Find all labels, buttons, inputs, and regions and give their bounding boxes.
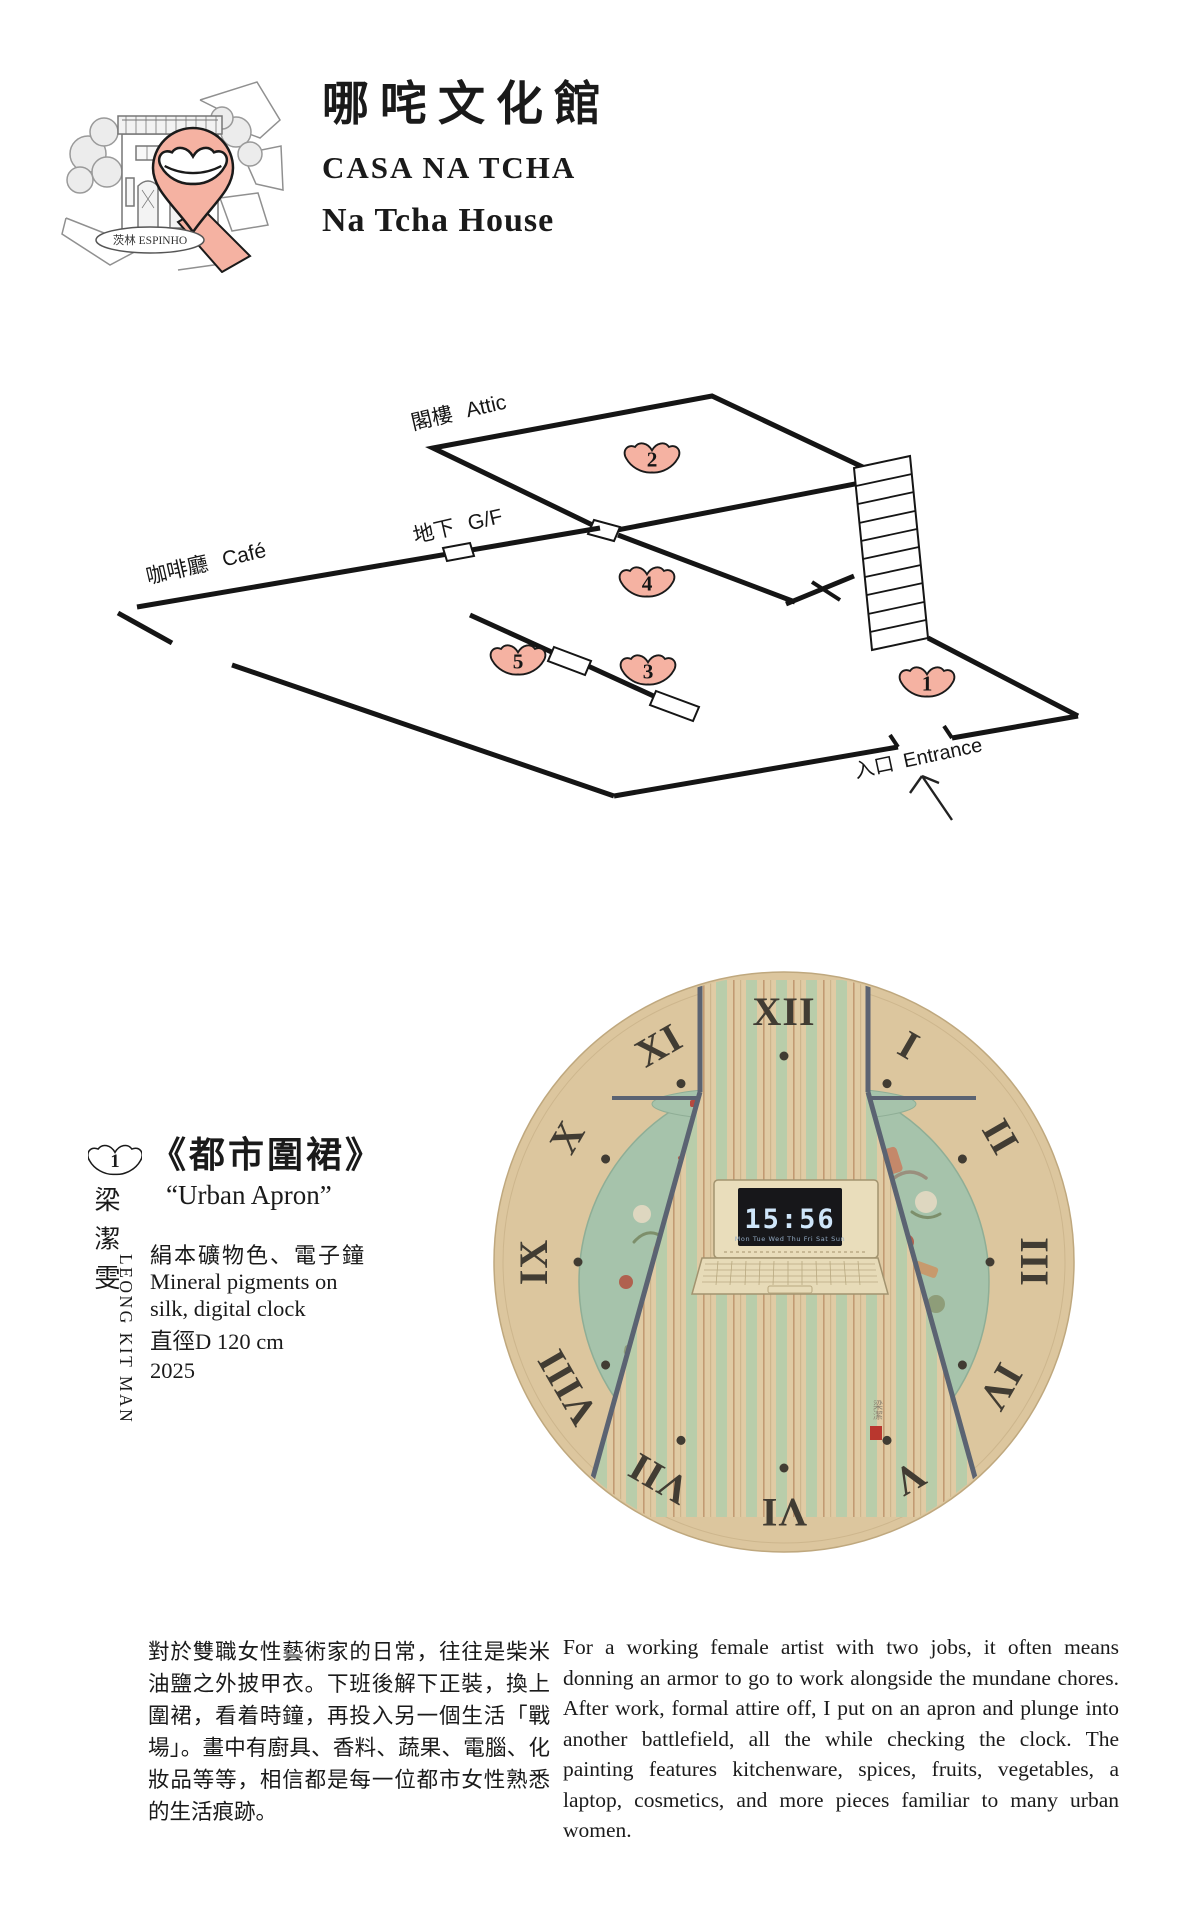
partition-door-a <box>548 647 591 675</box>
laptop-clock: 15:56 Mon Tue Wed Thu Fri Sat Sun <box>692 1180 888 1294</box>
entrance-arrow-icon <box>910 776 952 820</box>
attic-label-en: Attic <box>464 391 509 423</box>
artist-signature: 梁潔 <box>871 1399 883 1421</box>
cafe-label-en: Café <box>220 539 268 571</box>
marker-3-number: 3 <box>643 660 654 684</box>
artwork-number-badge: 1 <box>88 1138 142 1182</box>
marker-1-number: 1 <box>922 672 933 696</box>
entrance-label-en: Entrance <box>901 734 984 772</box>
seal-stamp-icon <box>870 1426 882 1440</box>
numeral-12: XII <box>752 989 815 1034</box>
map-marker-4: 4 <box>620 567 675 596</box>
artwork-title-en: “Urban Apron” <box>166 1180 332 1211</box>
hall-sw-wall <box>232 665 614 796</box>
floor-plan: 閣樓 Attic 地下 G/F 咖啡廳 Café 入口 Entrance 2 4… <box>0 330 1200 860</box>
cafe-label-zh: 咖啡廳 <box>144 552 211 589</box>
natcha-house-logo: 茨林 ESPINHO <box>50 58 285 273</box>
page-title-zh: 哪咤文化館 <box>322 82 612 129</box>
gf-wall-door <box>443 543 474 561</box>
artwork-medium-zh: 絹本礦物色、電子鐘 <box>150 1238 366 1270</box>
clock-days: Mon Tue Wed Thu Fri Sat Sun <box>735 1235 846 1243</box>
numeral-3: III <box>1012 1237 1057 1287</box>
page-title-en: Na Tcha House <box>322 204 554 238</box>
entrance-wall-right <box>952 716 1078 738</box>
marker-4-number: 4 <box>642 572 653 596</box>
artist-name-en: LEONG KIT MAN <box>115 1254 136 1424</box>
attic-label-zh: 閣樓 <box>409 403 455 435</box>
marker-2-number: 2 <box>647 448 658 472</box>
entrance-tick-right <box>944 726 952 738</box>
artwork-urban-apron: 15:56 Mon Tue Wed Thu Fri Sat Sun 梁潔 XII… <box>474 952 1094 1572</box>
staircase <box>854 456 928 650</box>
numeral-6: VI <box>761 1490 807 1535</box>
cafe-left-wall <box>118 613 172 643</box>
stair-side-wall <box>786 576 854 604</box>
artwork-title-zh: 《都市圍裙》 <box>150 1126 384 1178</box>
description-en: For a working female artist with two job… <box>563 1632 1119 1846</box>
gf-label-en: G/F <box>466 505 505 535</box>
artwork-medium-en: Mineral pigments on silk, digital clock <box>150 1268 365 1322</box>
marker-5-number: 5 <box>513 650 524 674</box>
map-marker-1: 1 <box>900 667 955 696</box>
numeral-9: IX <box>511 1239 556 1285</box>
entrance-label-zh: 入口 <box>852 753 896 783</box>
artwork-dimensions: 直徑D 120 cm <box>150 1324 284 1356</box>
entrance-label: 入口 Entrance <box>852 734 984 783</box>
leaflet-page: { "header": { "title_zh": "哪咤文化館", "titl… <box>0 0 1200 1921</box>
page-title-pt: CASA NA TCHA <box>322 152 576 183</box>
partition-door-b <box>650 691 699 721</box>
description-zh: 對於雙職女性藝術家的日常，往往是柴米油鹽之外披甲衣。下班後解下正裝，換上圍裙，看… <box>148 1636 550 1828</box>
attic-label: 閣樓 Attic <box>409 391 509 435</box>
map-marker-5: 5 <box>491 645 546 674</box>
artwork-number: 1 <box>110 1151 119 1172</box>
artwork-year: 2025 <box>150 1358 195 1384</box>
clock-time: 15:56 <box>744 1204 835 1235</box>
gf-label-zh: 地下 <box>411 516 457 548</box>
cafe-label: 咖啡廳 Café <box>144 539 268 589</box>
gf-label: 地下 G/F <box>411 505 505 548</box>
logo-label-text: 茨林 ESPINHO <box>113 233 187 247</box>
map-marker-3: 3 <box>621 655 676 684</box>
